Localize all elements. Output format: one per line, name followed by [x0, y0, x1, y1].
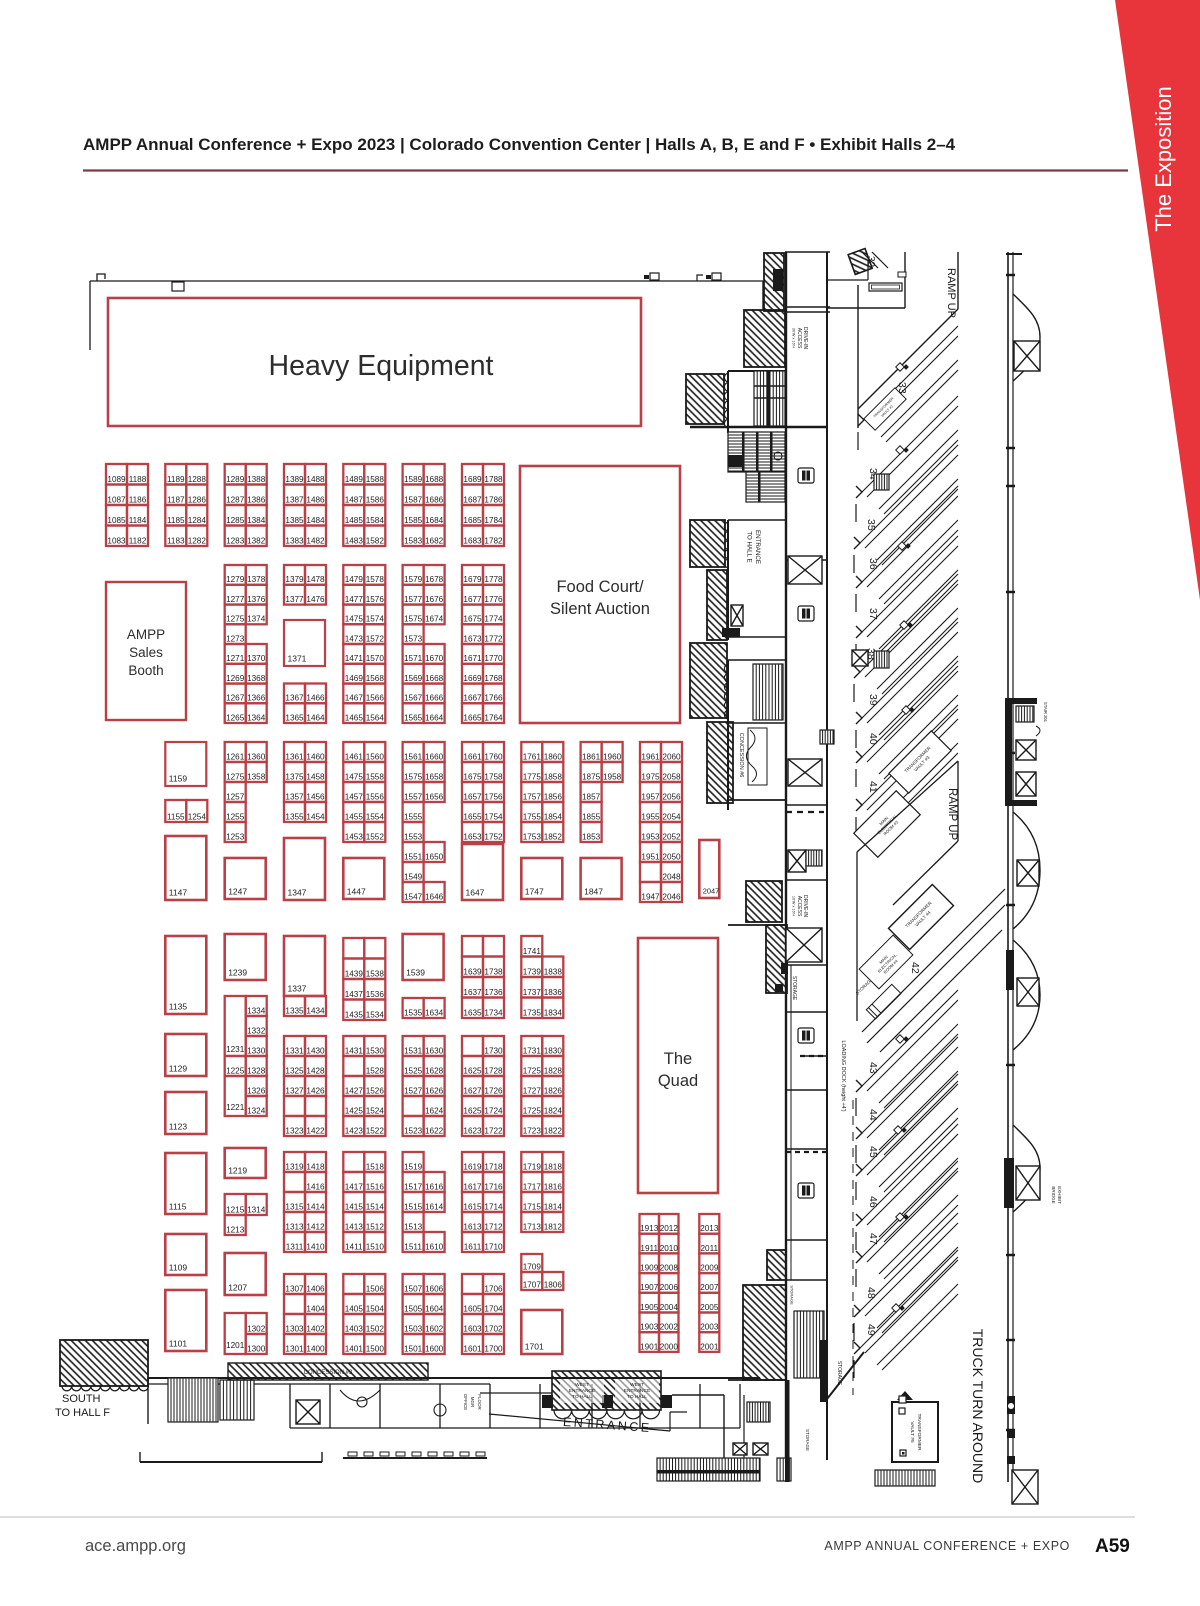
- svg-text:1665: 1665: [463, 713, 482, 722]
- svg-text:1724: 1724: [484, 1106, 503, 1115]
- svg-text:1903: 1903: [640, 1323, 659, 1332]
- svg-text:1761: 1761: [523, 752, 542, 761]
- svg-text:1314: 1314: [247, 1205, 266, 1214]
- svg-text:1473: 1473: [345, 634, 364, 643]
- svg-text:1712: 1712: [484, 1222, 503, 1231]
- svg-text:1577: 1577: [404, 595, 423, 604]
- svg-text:1187: 1187: [167, 495, 185, 504]
- svg-text:VAULT #5: VAULT #5: [909, 1421, 915, 1443]
- svg-text:1728: 1728: [484, 1066, 503, 1075]
- svg-text:The: The: [664, 1050, 692, 1068]
- svg-text:1285: 1285: [226, 516, 245, 525]
- svg-text:1758: 1758: [484, 772, 503, 781]
- svg-text:1147: 1147: [169, 888, 188, 898]
- svg-text:1423: 1423: [345, 1126, 364, 1135]
- svg-text:1610: 1610: [425, 1242, 444, 1251]
- svg-text:1385: 1385: [285, 516, 304, 525]
- svg-text:STAIR 201: STAIR 201: [1043, 702, 1048, 723]
- svg-text:1753: 1753: [523, 832, 542, 841]
- svg-text:1255: 1255: [226, 812, 245, 821]
- svg-text:2060: 2060: [662, 752, 681, 761]
- svg-text:1760: 1760: [484, 752, 503, 761]
- svg-text:1634: 1634: [425, 1008, 444, 1017]
- svg-text:1366: 1366: [247, 694, 266, 703]
- svg-text:1502: 1502: [366, 1324, 385, 1333]
- svg-text:1834: 1834: [544, 1008, 563, 1017]
- svg-text:42: 42: [909, 962, 921, 974]
- svg-text:1570: 1570: [366, 654, 385, 663]
- svg-text:1624: 1624: [425, 1106, 444, 1115]
- svg-text:1836: 1836: [544, 988, 563, 997]
- svg-text:1786: 1786: [484, 495, 503, 504]
- svg-text:1471: 1471: [345, 654, 364, 663]
- svg-text:1302: 1302: [247, 1324, 266, 1333]
- svg-text:1455: 1455: [345, 812, 364, 821]
- svg-text:1747: 1747: [525, 887, 544, 897]
- svg-text:1261: 1261: [226, 752, 245, 761]
- svg-text:1560: 1560: [366, 752, 385, 761]
- svg-text:1109: 1109: [169, 1263, 188, 1273]
- svg-text:1558: 1558: [366, 772, 385, 781]
- svg-text:1704: 1704: [484, 1304, 503, 1313]
- svg-text:1525: 1525: [404, 1066, 423, 1075]
- svg-text:2011: 2011: [700, 1244, 718, 1253]
- svg-text:1273: 1273: [226, 634, 245, 643]
- svg-text:1528: 1528: [366, 1066, 385, 1075]
- svg-text:1434: 1434: [306, 1006, 325, 1015]
- svg-text:1283: 1283: [226, 536, 245, 545]
- svg-text:1089: 1089: [107, 475, 126, 484]
- svg-text:1479: 1479: [345, 575, 364, 584]
- svg-text:1725: 1725: [523, 1106, 542, 1115]
- svg-text:1524: 1524: [366, 1106, 385, 1115]
- svg-text:1376: 1376: [247, 595, 266, 604]
- svg-text:1123: 1123: [169, 1122, 188, 1132]
- svg-text:1326: 1326: [247, 1086, 266, 1095]
- svg-text:1578: 1578: [366, 575, 385, 584]
- svg-text:1824: 1824: [544, 1106, 563, 1115]
- svg-text:WEST: WEST: [630, 1382, 644, 1388]
- svg-text:1677: 1677: [463, 595, 482, 604]
- svg-text:1410: 1410: [306, 1242, 325, 1251]
- svg-text:1627: 1627: [463, 1086, 482, 1095]
- svg-text:1313: 1313: [285, 1222, 304, 1231]
- svg-text:1382: 1382: [247, 536, 266, 545]
- svg-text:Booth: Booth: [128, 663, 163, 678]
- svg-text:ACCESS: ACCESS: [796, 328, 802, 349]
- svg-text:1085: 1085: [107, 516, 126, 525]
- svg-text:1515: 1515: [404, 1202, 423, 1211]
- svg-text:1183: 1183: [167, 536, 185, 545]
- svg-text:1357: 1357: [285, 792, 304, 801]
- svg-text:1774: 1774: [484, 615, 503, 624]
- svg-text:1776: 1776: [484, 595, 503, 604]
- svg-text:1437: 1437: [345, 990, 364, 999]
- svg-text:1576: 1576: [366, 595, 385, 604]
- svg-text:1604: 1604: [425, 1304, 444, 1313]
- svg-text:1605: 1605: [463, 1304, 482, 1313]
- svg-text:1219: 1219: [228, 1166, 247, 1176]
- svg-text:AMPP Annual Conference + Expo: AMPP Annual Conference + Expo 2023 | Col…: [83, 135, 956, 154]
- svg-text:1332: 1332: [247, 1026, 266, 1035]
- svg-text:1478: 1478: [306, 575, 325, 584]
- svg-text:1856: 1856: [544, 792, 563, 801]
- svg-text:1334: 1334: [247, 1006, 266, 1015]
- svg-text:1475: 1475: [345, 772, 364, 781]
- svg-text:1327: 1327: [285, 1086, 304, 1095]
- svg-text:1370: 1370: [247, 654, 266, 663]
- svg-text:1710: 1710: [484, 1242, 503, 1251]
- svg-text:1619: 1619: [463, 1162, 482, 1171]
- svg-text:1830: 1830: [544, 1046, 563, 1055]
- svg-text:1379: 1379: [285, 575, 304, 584]
- svg-text:1365: 1365: [285, 713, 304, 722]
- svg-text:1231: 1231: [226, 1045, 245, 1054]
- svg-text:1337: 1337: [288, 984, 307, 994]
- svg-text:1307: 1307: [285, 1284, 304, 1293]
- svg-text:1485: 1485: [345, 516, 364, 525]
- svg-text:1384: 1384: [247, 516, 266, 525]
- svg-text:1764: 1764: [484, 713, 503, 722]
- svg-text:1583: 1583: [404, 536, 423, 545]
- svg-text:1715: 1715: [523, 1202, 542, 1211]
- svg-text:1324: 1324: [247, 1106, 266, 1115]
- svg-text:1947: 1947: [641, 892, 660, 901]
- svg-text:2002: 2002: [660, 1323, 679, 1332]
- svg-text:1315: 1315: [285, 1202, 304, 1211]
- svg-text:1405: 1405: [345, 1304, 364, 1313]
- svg-text:1389: 1389: [285, 475, 304, 484]
- svg-text:The Exposition: The Exposition: [1151, 86, 1176, 232]
- svg-text:1775: 1775: [523, 772, 542, 781]
- svg-text:1852: 1852: [544, 832, 563, 841]
- svg-text:1401: 1401: [345, 1344, 364, 1353]
- svg-text:1858: 1858: [544, 772, 563, 781]
- svg-text:1567: 1567: [404, 694, 423, 703]
- svg-text:1617: 1617: [463, 1182, 482, 1191]
- svg-text:1660: 1660: [425, 752, 444, 761]
- svg-text:1300: 1300: [247, 1344, 266, 1353]
- svg-text:1503: 1503: [404, 1324, 423, 1333]
- svg-text:2046: 2046: [662, 892, 681, 901]
- svg-text:1347: 1347: [288, 888, 307, 898]
- svg-text:1960: 1960: [603, 752, 622, 761]
- svg-text:1518: 1518: [366, 1162, 385, 1171]
- svg-text:1714: 1714: [484, 1202, 503, 1211]
- svg-text:1526: 1526: [366, 1086, 385, 1095]
- svg-text:2001: 2001: [700, 1342, 719, 1351]
- svg-text:1115: 1115: [169, 1202, 187, 1212]
- svg-text:20'W x 16'H: 20'W x 16'H: [792, 328, 796, 348]
- svg-text:1616: 1616: [425, 1182, 444, 1191]
- svg-text:2007: 2007: [700, 1283, 719, 1292]
- svg-text:1958: 1958: [603, 772, 622, 781]
- svg-text:2054: 2054: [662, 812, 681, 821]
- svg-text:1367: 1367: [285, 694, 304, 703]
- svg-text:1371: 1371: [288, 654, 307, 664]
- svg-text:1818: 1818: [544, 1162, 563, 1171]
- svg-text:WEST: WEST: [575, 1382, 589, 1388]
- svg-text:TO HALL E: TO HALL E: [746, 531, 753, 562]
- svg-text:1646: 1646: [425, 892, 444, 901]
- svg-text:TO HALL F: TO HALL F: [55, 1407, 110, 1419]
- svg-text:1267: 1267: [226, 694, 245, 703]
- svg-text:1625: 1625: [463, 1106, 482, 1115]
- svg-text:1755: 1755: [523, 812, 542, 821]
- svg-text:TRANSFORMER: TRANSFORMER: [916, 1413, 922, 1451]
- svg-text:OFFICE: OFFICE: [463, 1394, 468, 1411]
- svg-text:2050: 2050: [662, 852, 681, 861]
- svg-text:1186: 1186: [129, 495, 147, 504]
- svg-text:1770: 1770: [484, 654, 503, 663]
- svg-text:1686: 1686: [425, 495, 444, 504]
- svg-text:48: 48: [865, 1287, 877, 1299]
- svg-text:1239: 1239: [228, 968, 247, 978]
- svg-text:1768: 1768: [484, 674, 503, 683]
- svg-text:49: 49: [865, 1324, 877, 1336]
- svg-text:1589: 1589: [404, 475, 423, 484]
- svg-text:1676: 1676: [425, 595, 444, 604]
- svg-text:1670: 1670: [425, 654, 444, 663]
- svg-text:1731: 1731: [523, 1046, 542, 1055]
- svg-text:1556: 1556: [366, 792, 385, 801]
- svg-text:1213: 1213: [226, 1225, 245, 1234]
- svg-text:1188: 1188: [129, 475, 147, 484]
- svg-text:CONCESSION #3: CONCESSION #3: [304, 1370, 353, 1376]
- svg-text:1453: 1453: [345, 832, 364, 841]
- svg-text:1573: 1573: [404, 634, 423, 643]
- svg-text:1622: 1622: [425, 1126, 444, 1135]
- svg-text:Quad: Quad: [658, 1072, 698, 1090]
- svg-text:1355: 1355: [285, 812, 304, 821]
- svg-text:1571: 1571: [404, 654, 423, 663]
- svg-text:1600: 1600: [425, 1344, 444, 1353]
- svg-text:1439: 1439: [345, 969, 364, 978]
- svg-text:1467: 1467: [345, 694, 364, 703]
- svg-text:1378: 1378: [247, 575, 266, 584]
- svg-text:Heavy Equipment: Heavy Equipment: [269, 350, 494, 382]
- svg-text:STORAGE: STORAGE: [791, 976, 797, 1001]
- svg-text:1461: 1461: [345, 752, 364, 761]
- svg-text:1254: 1254: [188, 812, 207, 821]
- svg-text:1527: 1527: [404, 1086, 423, 1095]
- svg-text:1189: 1189: [167, 475, 185, 484]
- svg-text:46: 46: [867, 1196, 879, 1208]
- svg-text:1553: 1553: [404, 832, 423, 841]
- svg-text:1330: 1330: [247, 1046, 266, 1055]
- svg-text:41: 41: [867, 781, 879, 793]
- svg-text:2008: 2008: [660, 1264, 679, 1273]
- svg-text:1679: 1679: [463, 575, 482, 584]
- svg-text:36: 36: [867, 558, 879, 570]
- svg-text:1782: 1782: [484, 536, 503, 545]
- svg-text:1647: 1647: [466, 888, 485, 898]
- svg-text:1853: 1853: [582, 832, 601, 841]
- svg-text:1539: 1539: [406, 968, 425, 978]
- svg-text:1826: 1826: [544, 1086, 563, 1095]
- svg-text:1901: 1901: [640, 1342, 659, 1351]
- svg-text:1757: 1757: [523, 792, 542, 801]
- svg-text:2052: 2052: [662, 832, 681, 841]
- svg-text:1547: 1547: [404, 892, 423, 901]
- svg-text:1364: 1364: [247, 713, 266, 722]
- svg-text:1718: 1718: [484, 1162, 503, 1171]
- svg-text:1572: 1572: [366, 634, 385, 643]
- svg-text:1286: 1286: [188, 495, 207, 504]
- svg-text:1402: 1402: [306, 1324, 325, 1333]
- svg-text:1447: 1447: [347, 887, 366, 897]
- svg-text:40: 40: [867, 733, 879, 745]
- svg-text:1909: 1909: [640, 1264, 659, 1273]
- svg-text:1483: 1483: [345, 536, 364, 545]
- svg-text:1275: 1275: [226, 615, 245, 624]
- svg-text:1519: 1519: [404, 1162, 423, 1171]
- svg-text:1387: 1387: [285, 495, 304, 504]
- svg-text:1569: 1569: [404, 674, 423, 683]
- svg-text:1253: 1253: [226, 832, 245, 841]
- svg-text:2058: 2058: [662, 772, 681, 781]
- svg-text:1416: 1416: [306, 1182, 325, 1191]
- svg-text:A59: A59: [1095, 1536, 1130, 1557]
- svg-text:1454: 1454: [306, 812, 325, 821]
- svg-text:1319: 1319: [285, 1162, 304, 1171]
- svg-text:1911: 1911: [640, 1244, 658, 1253]
- svg-text:1671: 1671: [463, 654, 482, 663]
- svg-text:1185: 1185: [167, 516, 185, 525]
- svg-text:1561: 1561: [404, 752, 423, 761]
- svg-text:1427: 1427: [345, 1086, 364, 1095]
- svg-text:1557: 1557: [404, 792, 423, 801]
- svg-text:1534: 1534: [366, 1010, 385, 1019]
- svg-text:1601: 1601: [463, 1344, 482, 1353]
- svg-text:1953: 1953: [641, 832, 660, 841]
- svg-text:1630: 1630: [425, 1046, 444, 1055]
- svg-text:1727: 1727: [523, 1086, 542, 1095]
- svg-text:2010: 2010: [660, 1244, 679, 1253]
- svg-text:1129: 1129: [169, 1064, 188, 1074]
- svg-text:1816: 1816: [544, 1182, 563, 1191]
- svg-text:1951: 1951: [641, 852, 660, 861]
- svg-text:1738: 1738: [484, 967, 503, 976]
- svg-text:1637: 1637: [463, 988, 482, 997]
- svg-text:1323: 1323: [285, 1126, 304, 1135]
- svg-text:1639: 1639: [463, 967, 482, 976]
- svg-text:1507: 1507: [404, 1284, 423, 1293]
- svg-text:1584: 1584: [366, 516, 385, 525]
- svg-text:Silent Auction: Silent Auction: [550, 600, 650, 618]
- svg-text:1538: 1538: [366, 969, 385, 978]
- svg-text:1585: 1585: [404, 516, 423, 525]
- svg-text:1277: 1277: [226, 595, 245, 604]
- svg-text:1415: 1415: [345, 1202, 364, 1211]
- svg-text:1674: 1674: [425, 615, 444, 624]
- svg-text:Sales: Sales: [129, 645, 163, 660]
- svg-text:1489: 1489: [345, 475, 364, 484]
- svg-text:1756: 1756: [484, 792, 503, 801]
- svg-text:1737: 1737: [523, 988, 542, 997]
- svg-text:1766: 1766: [484, 694, 503, 703]
- svg-text:1565: 1565: [404, 713, 423, 722]
- svg-text:1522: 1522: [366, 1126, 385, 1135]
- svg-text:1635: 1635: [463, 1008, 482, 1017]
- svg-text:1458: 1458: [306, 772, 325, 781]
- svg-text:ENTRANCE: ENTRANCE: [624, 1388, 650, 1394]
- svg-text:1465: 1465: [345, 713, 364, 722]
- svg-text:1135: 1135: [169, 1002, 188, 1012]
- svg-text:1860: 1860: [544, 752, 563, 761]
- svg-text:1552: 1552: [366, 832, 385, 841]
- svg-text:1184: 1184: [129, 516, 147, 525]
- svg-text:1506: 1506: [366, 1284, 385, 1293]
- svg-text:1669: 1669: [463, 674, 482, 683]
- svg-text:2006: 2006: [660, 1283, 679, 1292]
- svg-text:1282: 1282: [188, 536, 207, 545]
- svg-text:1406: 1406: [306, 1284, 325, 1293]
- svg-text:CONCESSION #6: CONCESSION #6: [738, 733, 744, 778]
- svg-text:1847: 1847: [584, 887, 603, 897]
- svg-text:1413: 1413: [345, 1222, 364, 1231]
- svg-text:1666: 1666: [425, 694, 444, 703]
- svg-text:1360: 1360: [247, 752, 266, 761]
- svg-text:1422: 1422: [306, 1126, 325, 1135]
- svg-text:1754: 1754: [484, 812, 503, 821]
- svg-text:1303: 1303: [285, 1324, 304, 1333]
- svg-text:1388: 1388: [247, 475, 266, 484]
- svg-text:1574: 1574: [366, 615, 385, 624]
- svg-text:2047: 2047: [703, 887, 719, 896]
- svg-text:1822: 1822: [544, 1126, 563, 1135]
- svg-text:1456: 1456: [306, 792, 325, 801]
- svg-text:1707: 1707: [523, 1280, 542, 1289]
- svg-text:1814: 1814: [544, 1202, 563, 1211]
- svg-text:TRUCK TURN AROUND: TRUCK TURN AROUND: [970, 1329, 986, 1484]
- svg-text:LOADING DOCK (height +4'): LOADING DOCK (height +4'): [840, 1040, 846, 1111]
- svg-text:1271: 1271: [226, 654, 245, 663]
- svg-text:1523: 1523: [404, 1126, 423, 1135]
- svg-text:1101: 1101: [169, 1339, 188, 1349]
- svg-text:ace.ampp.org: ace.ampp.org: [85, 1537, 186, 1555]
- svg-text:1587: 1587: [404, 495, 423, 504]
- svg-text:1706: 1706: [484, 1284, 503, 1293]
- svg-text:EXHIBIT: EXHIBIT: [1057, 1186, 1062, 1204]
- svg-text:1215: 1215: [226, 1205, 245, 1214]
- svg-text:1426: 1426: [306, 1086, 325, 1095]
- svg-text:1650: 1650: [425, 852, 444, 861]
- svg-text:1688: 1688: [425, 475, 444, 484]
- svg-text:16'W x 16'H: 16'W x 16'H: [792, 896, 796, 916]
- svg-text:1702: 1702: [484, 1324, 503, 1333]
- svg-text:1484: 1484: [306, 516, 325, 525]
- svg-text:1655: 1655: [463, 812, 482, 821]
- svg-text:1428: 1428: [306, 1066, 325, 1075]
- svg-text:1615: 1615: [463, 1202, 482, 1211]
- svg-text:1457: 1457: [345, 792, 364, 801]
- svg-text:RAMP UP: RAMP UP: [946, 788, 958, 841]
- svg-text:2003: 2003: [700, 1323, 719, 1332]
- svg-text:1375: 1375: [285, 772, 304, 781]
- svg-text:1673: 1673: [463, 634, 482, 643]
- svg-text:1778: 1778: [484, 575, 503, 584]
- svg-text:1730: 1730: [484, 1046, 503, 1055]
- svg-text:1725: 1725: [523, 1066, 542, 1075]
- svg-text:1368: 1368: [247, 674, 266, 683]
- svg-text:2012: 2012: [660, 1224, 679, 1233]
- svg-text:1723: 1723: [523, 1126, 542, 1135]
- svg-text:1788: 1788: [484, 475, 503, 484]
- svg-text:ENTRANCE: ENTRANCE: [754, 530, 761, 564]
- svg-text:1284: 1284: [188, 516, 207, 525]
- svg-text:TO HALL: TO HALL: [572, 1394, 592, 1400]
